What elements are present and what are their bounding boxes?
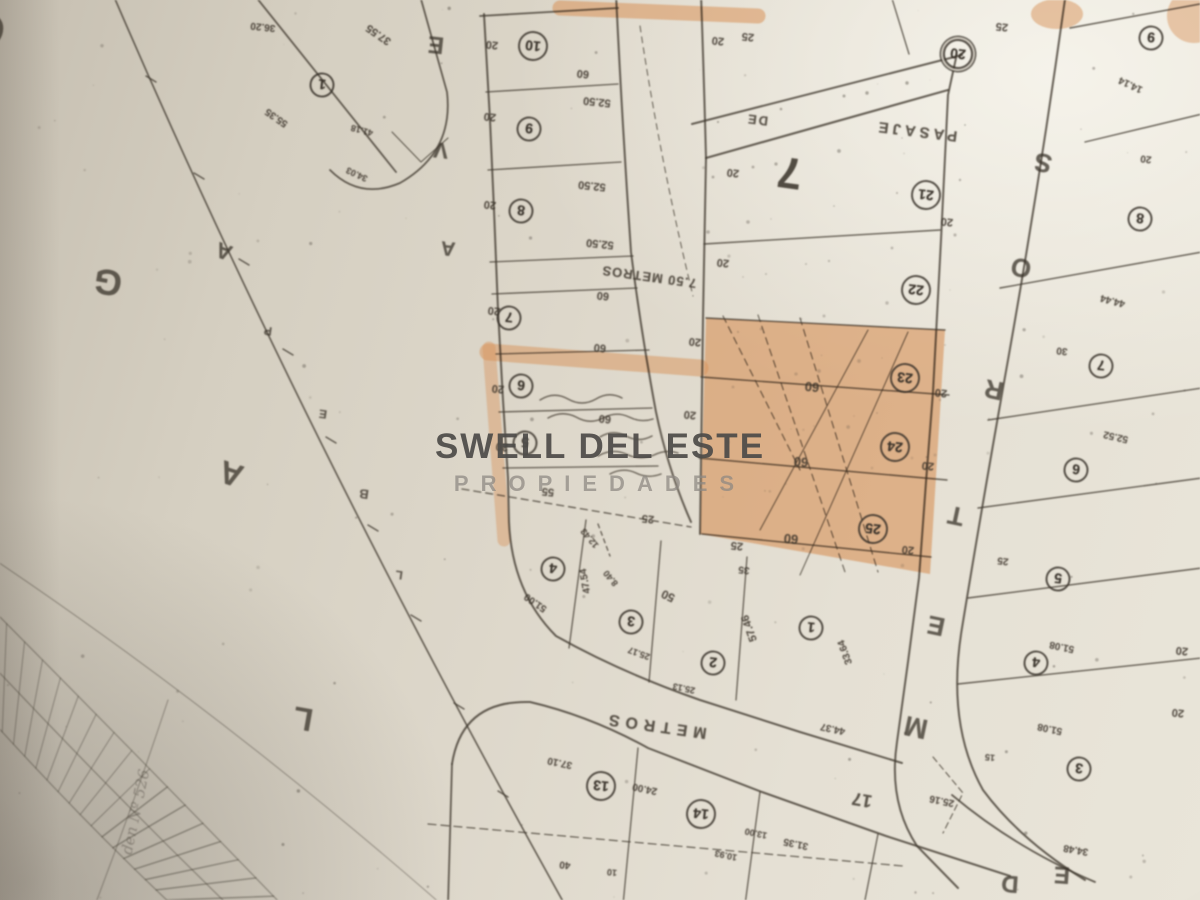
letter-label: E bbox=[318, 408, 328, 421]
measurement-label: 25 bbox=[741, 30, 754, 42]
measurement-label: 25 bbox=[730, 539, 743, 551]
measurement-label: 25 bbox=[997, 554, 1009, 565]
measurement-label: 20 bbox=[495, 440, 508, 452]
measurement-label: 60 bbox=[793, 455, 809, 469]
measurement-label: 60 bbox=[783, 532, 799, 546]
measurement-label: 20 bbox=[1140, 152, 1152, 163]
measurement-label: 20 bbox=[940, 215, 953, 227]
measurement-label: 20 bbox=[711, 34, 724, 46]
letter-label: E bbox=[1053, 861, 1071, 886]
passage-center-dashed bbox=[640, 26, 693, 296]
measurement-label: 25 bbox=[995, 20, 1008, 32]
east-street-east-edge bbox=[957, 0, 1085, 880]
measurement-label: 20 bbox=[901, 543, 914, 555]
measurement-label: 35 bbox=[738, 563, 750, 574]
measurement-label: 60 bbox=[598, 412, 611, 424]
measurement-label: 20 bbox=[1175, 644, 1188, 656]
measurement-label: 20 bbox=[683, 408, 696, 420]
measurement-label: 52.50 bbox=[583, 94, 612, 108]
shoreline-curves bbox=[0, 560, 442, 900]
nw-block-outline bbox=[330, 0, 448, 189]
map-geometry bbox=[0, 0, 1200, 900]
sw-block-dividers bbox=[623, 748, 878, 900]
measurement-label: 20 bbox=[483, 110, 496, 122]
cadastral-map-photo: OGAALPEBLEVASORTEMDEPASAJEDE7.50 METROSM… bbox=[0, 0, 1200, 900]
measurement-label: 20 bbox=[934, 386, 947, 398]
letter-label: A bbox=[440, 237, 456, 258]
map-layer: OGAALPEBLEVASORTEMDEPASAJEDE7.50 METROSM… bbox=[0, 0, 1200, 900]
marker-swipe-street bbox=[488, 352, 700, 368]
letter-label: P bbox=[263, 325, 273, 338]
survey-tick-marks bbox=[146, 76, 508, 797]
lot20-divider bbox=[890, 0, 909, 54]
letter-label: V bbox=[433, 138, 450, 161]
measurement-label: 15 bbox=[985, 752, 996, 762]
pasaje-north-edge bbox=[692, 55, 962, 124]
street-label: 17 bbox=[851, 789, 874, 810]
marker-blob-corner bbox=[1167, 0, 1200, 43]
photo-dust-specks bbox=[7, 7, 1187, 899]
letter-label: E bbox=[427, 31, 445, 57]
measurement-label: 52.50 bbox=[586, 236, 615, 250]
measurement-label: 60 bbox=[576, 67, 589, 79]
street-label: DE bbox=[745, 112, 768, 128]
measurement-label: 36.20 bbox=[250, 20, 276, 33]
measurement-label: 25 bbox=[641, 512, 654, 524]
measurement-label: 20 bbox=[716, 256, 729, 268]
measurement-label: 40 bbox=[559, 858, 571, 869]
measurement-label: 60 bbox=[593, 341, 606, 353]
measurement-label: 10 bbox=[607, 867, 618, 877]
measurement-label: 60 bbox=[596, 289, 609, 301]
west-block-east-edge bbox=[616, 0, 691, 522]
measurement-label: 60 bbox=[804, 380, 820, 394]
measurement-label: 55 bbox=[541, 485, 554, 497]
hatched-subdivision bbox=[2, 624, 273, 900]
sw-dashed-line bbox=[428, 824, 903, 866]
sw-block-west-edge bbox=[448, 764, 452, 900]
measurement-label: 30 bbox=[1056, 344, 1068, 355]
letter-label: D bbox=[1001, 870, 1020, 895]
measurement-label: 20 bbox=[483, 198, 496, 210]
southeast-street-edge bbox=[952, 795, 1095, 882]
measurement-label: 20 bbox=[921, 459, 934, 471]
measurement-label: 20 bbox=[688, 335, 701, 347]
measurement-label: 20 bbox=[485, 38, 498, 50]
marker-swipe-top bbox=[560, 8, 758, 16]
east-block-dividers bbox=[958, 4, 1200, 684]
measurement-label: 20 bbox=[726, 166, 739, 178]
marker-blob-top bbox=[1031, 0, 1083, 29]
measurement-label: 20 bbox=[491, 382, 504, 394]
measurement-label: 52.50 bbox=[578, 178, 607, 192]
wavy-scribbles bbox=[540, 395, 678, 477]
letter-label: B bbox=[358, 487, 369, 501]
measurement-label: 20 bbox=[1171, 706, 1184, 718]
